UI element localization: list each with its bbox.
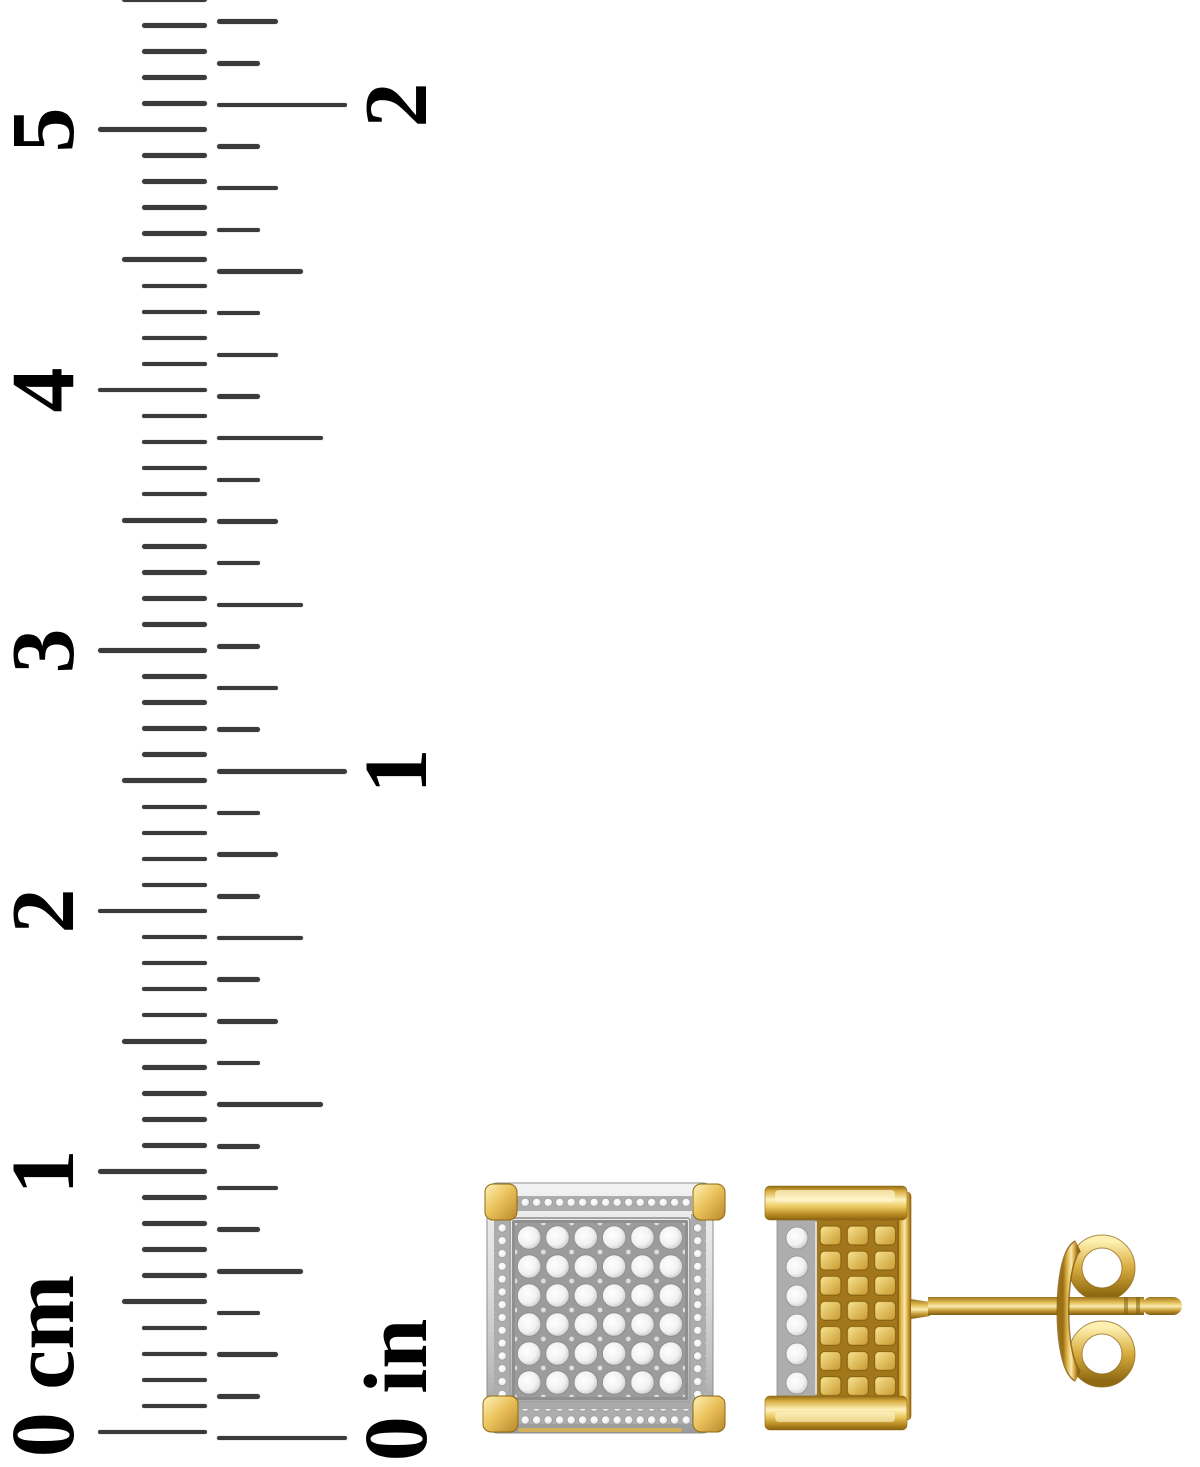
diamond-border-col-left bbox=[494, 1214, 509, 1406]
in-tick bbox=[217, 1061, 260, 1066]
cm-tick bbox=[142, 1378, 207, 1383]
in-tick bbox=[217, 852, 278, 857]
cm-tick bbox=[142, 831, 207, 836]
stud-earring-side-view bbox=[765, 1186, 911, 1430]
diamond-border-col-right bbox=[691, 1214, 706, 1406]
in-tick bbox=[217, 394, 260, 399]
in-tick bbox=[217, 603, 303, 608]
cm-tick bbox=[142, 544, 207, 549]
clutch-loop-top bbox=[1076, 1242, 1129, 1295]
cm-tick bbox=[142, 1221, 207, 1226]
in-tick bbox=[217, 1436, 347, 1441]
cm-tick bbox=[98, 909, 207, 914]
cm-tick bbox=[98, 388, 207, 393]
in-tick bbox=[217, 478, 260, 483]
in-tick bbox=[217, 1227, 260, 1232]
in-tick bbox=[217, 103, 347, 108]
cm-tick bbox=[142, 570, 207, 575]
cm-tick bbox=[142, 987, 207, 992]
cm-tick bbox=[142, 205, 207, 210]
cm-tick bbox=[142, 1143, 207, 1148]
in-tick bbox=[217, 769, 347, 774]
cm-tick bbox=[142, 935, 207, 940]
cm-label: 5 bbox=[0, 107, 89, 152]
cm-tick bbox=[142, 1352, 207, 1357]
cm-tick bbox=[142, 805, 207, 810]
gold-corner-prong bbox=[693, 1184, 725, 1220]
cm-tick bbox=[142, 674, 207, 679]
in-tick bbox=[217, 1144, 260, 1149]
cm-tick bbox=[122, 1039, 207, 1044]
gold-corner-prong bbox=[485, 1184, 517, 1220]
cm-tick bbox=[122, 1299, 207, 1304]
cm-tick bbox=[142, 466, 207, 471]
pave-diamond-grid bbox=[515, 1223, 685, 1397]
in-tick bbox=[217, 19, 278, 24]
cm-tick bbox=[142, 75, 207, 80]
cm-tick bbox=[142, 726, 207, 731]
earring-post bbox=[911, 1297, 1182, 1319]
in-tick bbox=[217, 727, 260, 732]
diamond-border-row-top bbox=[508, 1196, 692, 1211]
earrings-image bbox=[460, 1170, 1200, 1460]
cm-tick bbox=[142, 362, 207, 367]
in-tick bbox=[217, 644, 260, 649]
cm-tick bbox=[98, 1430, 207, 1435]
cm-tick bbox=[142, 596, 207, 601]
gold-waffle-texture bbox=[817, 1220, 899, 1396]
gold-corner-prong bbox=[693, 1396, 725, 1432]
in-tick bbox=[217, 1186, 278, 1191]
diamond-border-row-bottom bbox=[508, 1409, 692, 1424]
cm-label: 4 bbox=[0, 368, 89, 413]
cm-tick bbox=[142, 310, 207, 315]
in-tick bbox=[217, 519, 278, 524]
post-rod bbox=[928, 1297, 1144, 1315]
in-tick bbox=[217, 894, 260, 899]
in-label: 0 in bbox=[352, 1319, 442, 1462]
post-cone bbox=[911, 1299, 930, 1319]
cm-tick bbox=[98, 1169, 207, 1174]
in-tick bbox=[217, 561, 260, 566]
cm-tick bbox=[142, 1273, 207, 1278]
in-tick bbox=[217, 1311, 260, 1316]
cm-tick bbox=[142, 622, 207, 627]
in-tick bbox=[217, 144, 260, 149]
clutch-loop-bottom bbox=[1076, 1328, 1129, 1381]
cm-tick bbox=[142, 153, 207, 158]
cm-tick bbox=[122, 0, 207, 2]
in-label: 2 bbox=[352, 82, 442, 127]
cm-tick bbox=[142, 179, 207, 184]
cm-tick bbox=[142, 752, 207, 757]
cm-tick bbox=[98, 648, 207, 653]
cm-tick bbox=[142, 492, 207, 497]
in-tick bbox=[217, 1352, 278, 1357]
in-tick bbox=[217, 936, 303, 941]
in-tick bbox=[217, 311, 260, 316]
post-tip bbox=[1142, 1297, 1182, 1315]
cm-tick bbox=[142, 1117, 207, 1122]
in-tick bbox=[217, 269, 303, 274]
ruler: 0 cm123450 in12 bbox=[0, 0, 460, 1467]
in-label: 1 bbox=[352, 749, 442, 794]
in-tick bbox=[217, 1019, 278, 1024]
cm-tick bbox=[142, 961, 207, 966]
gold-bottom-edge bbox=[518, 1428, 682, 1432]
in-tick bbox=[217, 811, 260, 816]
cm-tick bbox=[142, 231, 207, 236]
in-tick bbox=[217, 1394, 260, 1399]
cm-tick bbox=[142, 1326, 207, 1331]
gold-corner-prong bbox=[483, 1396, 518, 1432]
in-tick bbox=[217, 436, 323, 441]
post-groove bbox=[1136, 1297, 1140, 1315]
cm-tick bbox=[142, 1247, 207, 1252]
cm-tick bbox=[142, 857, 207, 862]
cm-label: 3 bbox=[0, 628, 89, 673]
cm-tick bbox=[142, 414, 207, 419]
post-groove bbox=[1124, 1297, 1128, 1315]
cm-label: 0 cm bbox=[0, 1275, 89, 1457]
cm-tick bbox=[142, 1065, 207, 1070]
cm-tick bbox=[142, 1195, 207, 1200]
cm-tick bbox=[122, 257, 207, 262]
in-tick bbox=[217, 686, 278, 691]
in-tick bbox=[217, 977, 260, 982]
product-photo: 0 cm123450 in12 bbox=[0, 0, 1200, 1467]
in-tick bbox=[217, 186, 278, 191]
cm-label: 1 bbox=[0, 1149, 89, 1194]
cm-tick bbox=[142, 49, 207, 54]
in-tick bbox=[217, 61, 260, 66]
cm-tick bbox=[142, 1091, 207, 1096]
cm-tick bbox=[142, 101, 207, 106]
stud-earring-front-view bbox=[483, 1183, 725, 1433]
cm-tick bbox=[122, 778, 207, 783]
gold-back-plate bbox=[897, 1192, 911, 1420]
cm-tick bbox=[142, 284, 207, 289]
cm-tick bbox=[98, 127, 207, 132]
cm-tick bbox=[122, 518, 207, 523]
cm-tick bbox=[142, 440, 207, 445]
cm-tick bbox=[142, 883, 207, 888]
in-tick bbox=[217, 228, 260, 233]
cm-tick bbox=[142, 700, 207, 705]
in-tick bbox=[217, 1102, 323, 1107]
cm-tick bbox=[142, 1013, 207, 1018]
cm-tick bbox=[142, 1404, 207, 1409]
cm-label: 2 bbox=[0, 889, 89, 934]
in-tick bbox=[217, 1269, 303, 1274]
in-tick bbox=[217, 353, 278, 358]
cm-tick bbox=[142, 336, 207, 341]
cm-tick bbox=[142, 23, 207, 28]
